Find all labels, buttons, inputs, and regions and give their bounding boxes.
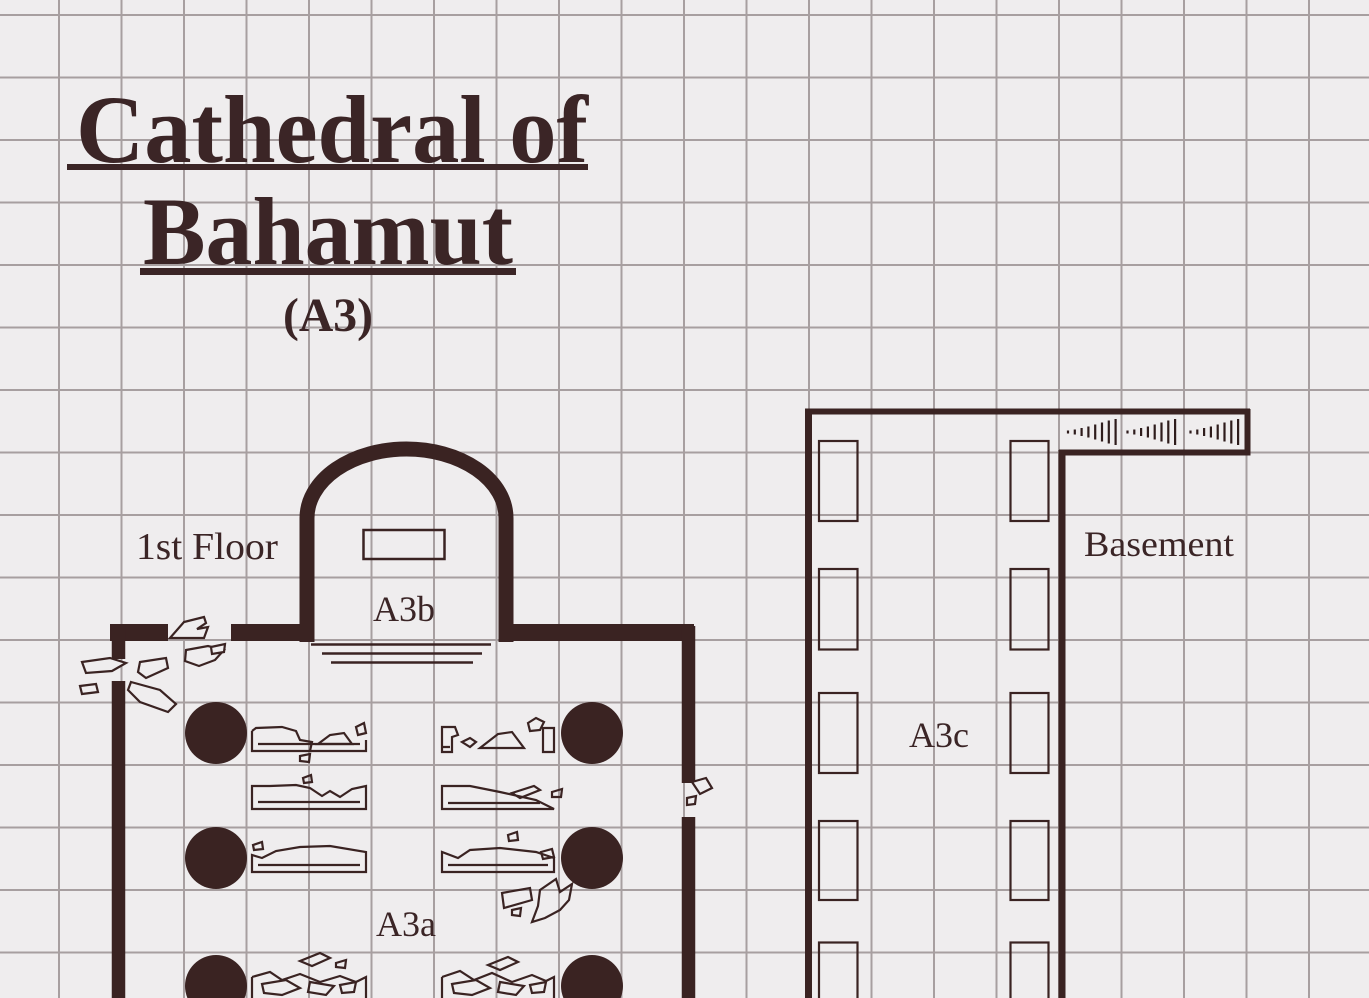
svg-text:A3a: A3a	[376, 904, 436, 944]
svg-text:(A3): (A3)	[283, 289, 373, 342]
svg-text:A3c: A3c	[909, 715, 969, 755]
svg-text:1st Floor: 1st Floor	[136, 526, 278, 568]
svg-text:A3b: A3b	[373, 589, 435, 629]
svg-text:Basement: Basement	[1084, 524, 1234, 564]
